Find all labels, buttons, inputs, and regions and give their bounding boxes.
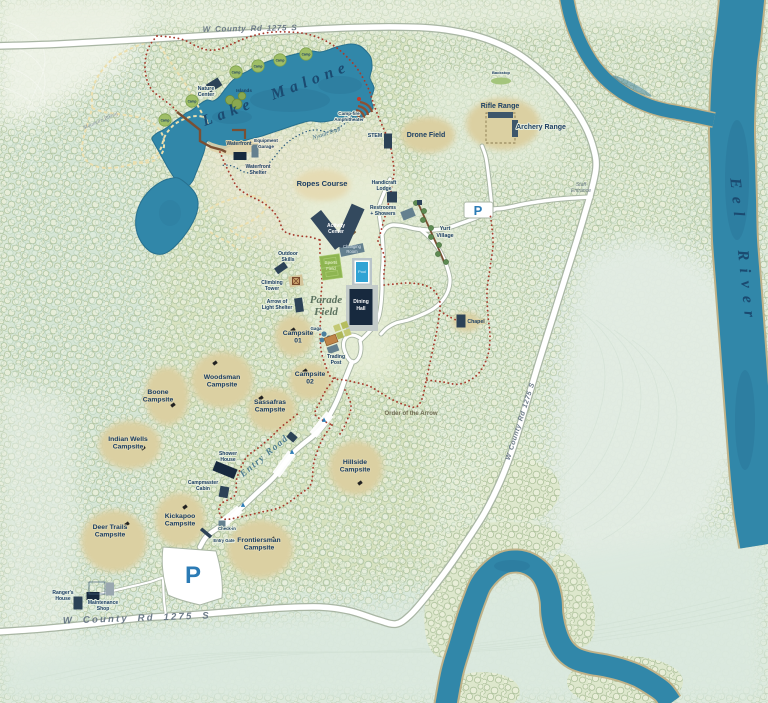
svg-text:Sassafras: Sassafras bbox=[254, 399, 286, 406]
svg-text:Camp: Camp bbox=[302, 52, 311, 56]
svg-text:Campsite: Campsite bbox=[244, 545, 275, 552]
svg-text:Entry Gate: Entry Gate bbox=[213, 538, 235, 543]
svg-text:Campsite: Campsite bbox=[255, 407, 286, 414]
svg-text:Garage: Garage bbox=[258, 144, 274, 149]
svg-text:Hall: Hall bbox=[356, 306, 366, 312]
svg-text:Camp: Camp bbox=[232, 70, 241, 74]
svg-text:House: House bbox=[55, 596, 71, 602]
svg-text:Parade: Parade bbox=[310, 294, 343, 306]
svg-text:Check-in: Check-in bbox=[218, 526, 236, 531]
svg-text:Equipment: Equipment bbox=[254, 138, 278, 143]
svg-text:Shelter: Shelter bbox=[250, 170, 267, 176]
svg-text:Campsite: Campsite bbox=[143, 397, 174, 404]
svg-text:Light Shelter: Light Shelter bbox=[262, 305, 293, 311]
svg-text:Camp: Camp bbox=[161, 118, 170, 122]
svg-text:Field: Field bbox=[326, 266, 336, 271]
svg-text:Ropes Course: Ropes Course bbox=[297, 179, 348, 188]
svg-text:Amphitheater: Amphitheater bbox=[334, 117, 364, 122]
svg-text:Archery Range: Archery Range bbox=[516, 124, 566, 131]
svg-text:Indian Wells: Indian Wells bbox=[108, 436, 148, 443]
svg-text:W County Rd 1275 S: W County Rd 1275 S bbox=[203, 23, 298, 34]
svg-text:Cabin: Cabin bbox=[196, 486, 210, 492]
svg-text:Gaga: Gaga bbox=[311, 326, 323, 331]
svg-text:Campsite: Campsite bbox=[295, 371, 326, 378]
svg-text:Rifle Range: Rifle Range bbox=[481, 103, 520, 110]
svg-text:Tower: Tower bbox=[265, 286, 279, 292]
svg-text:Backstop: Backstop bbox=[492, 70, 511, 75]
svg-text:Village: Village bbox=[436, 233, 453, 239]
svg-text:Entrance: Entrance bbox=[571, 188, 591, 194]
svg-text:Camp: Camp bbox=[276, 58, 285, 62]
svg-text:Pool: Pool bbox=[358, 269, 366, 274]
svg-text:+ Showers: + Showers bbox=[370, 211, 395, 217]
svg-text:Hillside: Hillside bbox=[343, 459, 367, 466]
svg-text:02: 02 bbox=[306, 379, 314, 386]
svg-text:Post: Post bbox=[331, 360, 342, 366]
svg-text:Woodsman: Woodsman bbox=[204, 374, 241, 381]
svg-text:Deer Trails: Deer Trails bbox=[93, 524, 128, 531]
svg-text:Shop: Shop bbox=[97, 606, 110, 612]
svg-text:Boone: Boone bbox=[147, 389, 168, 396]
svg-text:Center: Center bbox=[328, 229, 344, 235]
svg-text:P: P bbox=[185, 562, 201, 589]
svg-text:STEM: STEM bbox=[368, 133, 382, 139]
svg-text:Camp-fire: Camp-fire bbox=[338, 111, 360, 116]
svg-text:Drone Field: Drone Field bbox=[407, 132, 446, 139]
svg-text:Camp: Camp bbox=[188, 99, 197, 103]
svg-text:Campsite: Campsite bbox=[207, 382, 238, 389]
svg-text:P: P bbox=[474, 203, 483, 218]
svg-text:Center: Center bbox=[198, 92, 214, 98]
svg-text:Room: Room bbox=[346, 249, 358, 254]
svg-text:House: House bbox=[220, 457, 236, 463]
svg-text:Campsite: Campsite bbox=[165, 521, 196, 528]
svg-text:Order of the Arrow: Order of the Arrow bbox=[384, 411, 437, 417]
svg-text:Yurt: Yurt bbox=[440, 226, 451, 232]
svg-text:01: 01 bbox=[294, 338, 302, 345]
svg-text:Skills: Skills bbox=[281, 257, 294, 263]
svg-text:Campsite: Campsite bbox=[113, 444, 144, 451]
svg-text:Islands: Islands bbox=[236, 88, 252, 93]
svg-text:Campsite: Campsite bbox=[95, 532, 126, 539]
svg-text:Frontiersman: Frontiersman bbox=[237, 537, 280, 544]
svg-text:Lodge: Lodge bbox=[377, 186, 392, 192]
svg-text:Sports: Sports bbox=[325, 260, 338, 265]
svg-text:Campsite: Campsite bbox=[340, 467, 371, 474]
svg-text:Waterfront: Waterfront bbox=[226, 141, 251, 147]
svg-text:Campsite: Campsite bbox=[283, 330, 314, 337]
svg-text:Field: Field bbox=[313, 306, 338, 318]
svg-text:Kickapoo: Kickapoo bbox=[165, 513, 196, 520]
svg-text:Camp: Camp bbox=[254, 64, 263, 68]
svg-text:Dining: Dining bbox=[353, 299, 369, 305]
svg-text:Chapel: Chapel bbox=[467, 319, 485, 325]
